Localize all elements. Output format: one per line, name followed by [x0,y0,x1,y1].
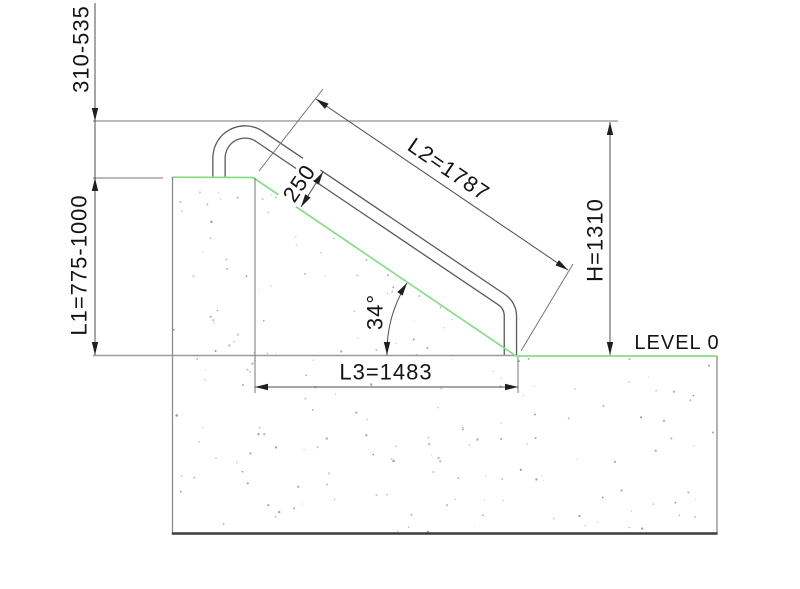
stipple-dot [469,444,470,445]
stipple-dot [387,274,389,276]
stipple-dot [267,212,269,214]
stipple-dot [484,499,485,500]
stipple-dot [673,391,675,393]
stipple-dot [434,296,435,297]
dimension-arrow [92,178,98,191]
stipple-dot [376,494,378,496]
stipple-dot [386,494,388,496]
stipple-dot [297,486,299,488]
stipple-dot [433,231,434,232]
stipple-dot [320,252,322,254]
stipple-dot [702,306,704,308]
stipple-dot [193,477,195,479]
stipple-dot [683,319,685,321]
stipple-dot [541,475,542,476]
stipple-dot [634,225,635,226]
stipple-dot [678,261,680,263]
technical-drawing: 310-535 L1=775-1000 L2=1787 250 H=1310 3… [0,0,800,589]
stipple-dot [539,350,540,351]
stipple-dot [206,203,208,205]
stipple-dot [607,350,609,352]
stipple-dot [202,427,203,428]
stipple-dot [597,319,599,321]
stipple-dot [365,434,367,436]
stipple-dot [334,499,335,500]
stipple-dot [346,222,348,224]
stipple-dot [249,371,251,373]
stipple-dot [228,344,230,346]
stipple-dot [563,325,564,326]
stipple-dot [432,213,434,215]
stipple-dot [574,388,576,390]
stipple-dot [501,478,503,480]
stipple-dot [462,428,464,430]
dimension-arrow [607,342,613,355]
stipple-dot [355,411,357,413]
stipple-dot [695,499,696,500]
stipple-dot [693,281,696,284]
stipple-dot [430,454,431,455]
stipple-dot [333,237,335,239]
dimension-arrow [92,108,98,121]
top-offset-dimension-label: 310-535 [69,5,94,93]
stipple-dot [263,433,265,435]
top-offset-dimension: 310-535 [69,5,94,93]
drawing-svg: 310-535 L1=775-1000 L2=1787 250 H=1310 3… [0,0,800,589]
stipple-dot [262,198,264,200]
stipple-dot [276,352,277,353]
stipple-dot [575,233,577,235]
stipple-dot [328,472,331,475]
stipple-dot [535,478,538,481]
stipple-dot [485,475,486,476]
stipple-dot [247,482,249,484]
stipple-dot [712,432,714,434]
stipple-dot [692,265,693,266]
l2-lower-extension-line [521,264,573,351]
stipple-dot [505,177,506,178]
stipple-dot [621,490,623,492]
stipple-dot [192,275,195,278]
stipple-dot [602,329,604,331]
stipple-dot [520,469,522,471]
stipple-dot [326,483,328,485]
stipple-dot [640,416,642,418]
dimension-arrow [607,122,613,135]
stipple-dot [258,177,260,179]
stipple-dot [675,230,677,232]
stipple-dot [237,461,238,462]
stipple-dot [454,499,456,501]
stipple-dot [312,409,314,411]
stipple-dot [646,242,648,244]
stipple-dot [301,504,302,505]
stipple-dot [267,504,269,506]
stipple-dot [443,327,445,329]
stipple-dot [458,477,460,479]
stipple-dot [692,395,694,397]
l3-dimension: L3=1483 [335,360,438,385]
stipple-dot [357,337,358,338]
stipple-dot [215,350,217,352]
stipple-dot [326,437,329,440]
stipple-dot [402,214,403,215]
stipple-dot [524,224,526,226]
stipple-dot [629,252,630,253]
stipple-dot [259,427,261,429]
stipple-dot [181,210,182,211]
stipple-dot [568,417,570,419]
stipple-dot [340,200,341,201]
stipple-dot [295,236,296,237]
stipple-dot [577,459,578,460]
stipple-dot [395,445,397,447]
stipple-dot [500,438,502,440]
stipple-dot [428,443,430,445]
stipple-dot [694,516,696,518]
stipple-dot [242,384,244,386]
stipple-dot [175,414,178,417]
stipple-dot [213,322,215,324]
stipple-dot [693,210,694,211]
stipple-dot [453,310,455,312]
stipple-dot [410,514,412,516]
stipple-dot [569,308,571,310]
stipple-dot [210,221,212,223]
stipple-dot [218,192,220,194]
stipple-dot [500,378,501,379]
stipple-dot [226,268,228,270]
stipple-dot [437,407,439,409]
stipple-dot [340,350,342,352]
stipple-dot [659,195,660,196]
stipple-dot [202,251,203,252]
stipple-dot [597,521,599,523]
l1-dimension: L1=775-1000 [67,194,92,335]
stipple-dot [196,358,198,360]
stipple-dot [529,207,531,209]
stipple-dot [451,318,453,320]
stipple-dot [498,281,500,283]
stipple-dot [502,500,503,501]
stipple-dot [537,212,539,214]
stipple-dot [357,245,359,247]
l2-dimension-label: L2=1787 [403,133,494,206]
stipple-dot [534,414,536,416]
dimension-arrow [92,342,98,355]
level0-label: LEVEL 0 [634,332,719,354]
stipple-dot [629,527,630,528]
stipple-dot [461,425,462,426]
stipple-dot [390,458,392,460]
stipple-dot [414,320,415,321]
stipple-dot [679,515,681,517]
stipple-dot [354,310,356,312]
stipple-dot [251,362,254,365]
stipple-dot [528,212,531,215]
stipple-dot [414,181,416,183]
stipple-dot [364,177,365,178]
stipple-dot [246,276,248,278]
stipple-dot [316,215,318,217]
stipple-dot [305,374,307,376]
stipple-dot [656,206,658,208]
stipple-dot [526,330,528,332]
stipple-dot [561,177,562,178]
stipple-dot [180,491,182,493]
stipple-dot [708,365,710,367]
stipple-dot [435,213,437,215]
angle-dimension: 34° [363,283,388,341]
stipple-dot [441,223,443,225]
stipple-dot [257,433,259,435]
stipple-dot [578,515,580,517]
stipple-dot [442,204,444,206]
stipple-dot [375,349,377,351]
angle-dimension-label: 34° [363,294,388,330]
stipple-dot [223,523,225,525]
h-dimension: H=1310 [583,198,608,282]
stipple-dot [585,525,586,526]
stipple-dot [687,491,689,493]
stipple-dot [535,437,537,439]
stipple-dot [199,191,201,193]
l1-dimension-label: L1=775-1000 [67,194,92,335]
l2-dimension: L2=1787 [403,133,494,206]
stipple-dot [565,221,568,224]
stipple-dot [440,388,442,390]
stipple-dot [263,320,265,322]
stipple-dot [602,496,604,498]
stipple-dot [540,297,542,299]
stipple-dot [439,460,441,462]
stipple-dot [440,307,442,309]
l3-dimension-label: L3=1483 [339,360,432,385]
stipple-dot [356,274,358,276]
stipple-dot [533,386,534,387]
stipple-dot [357,216,358,217]
stipple-dot [237,196,239,198]
stipple-dot [426,347,428,349]
stipple-dot [418,295,420,297]
stipple-dot [555,323,556,324]
stipple-dot [304,273,306,275]
stipple-dot [278,511,280,513]
stipple-dot [493,371,494,372]
stipple-dot [317,446,319,448]
stipple-dot [476,438,479,441]
stipple-dot [557,277,558,278]
stipple-dot [198,441,200,443]
stipple-dot [649,233,651,235]
stipple-dot [392,286,394,288]
stipple-dot [569,311,570,312]
stipple-dot [648,377,649,378]
stipple-dot [631,510,633,512]
stipple-dot [212,319,214,321]
stipple-dot [482,514,484,516]
stipple-dot [395,343,397,345]
stipple-dot [249,452,252,455]
stipple-dot [673,250,675,252]
stipple-dot [655,450,657,452]
stipple-dot [670,437,672,439]
stipple-dot [603,405,605,407]
stipple-dot [225,258,227,260]
stipple-dot [653,324,655,326]
stipple-dot [645,181,646,182]
stipple-dot [663,420,665,422]
stipple-dot [500,423,501,424]
stipple-dot [677,249,678,250]
stipple-dot [674,502,676,504]
stipple-dot [181,475,183,477]
stipple-dot [237,333,239,335]
stipple-dot [392,460,395,463]
h-dimension-label: H=1310 [583,198,608,282]
stipple-dot [627,254,629,256]
stipple-dot [271,194,272,195]
stipple-dot [246,368,249,371]
stipple-dot [691,275,693,277]
stipple-dot [365,241,367,243]
stipple-dot [210,238,212,240]
stipple-dot [689,399,691,401]
stipple-dot [695,298,697,300]
stipple-dot [408,526,410,528]
stipple-dot [437,457,439,459]
stipple-dot [708,195,710,197]
stipple-dot [653,503,655,505]
stipple-dot [641,527,643,529]
stipple-dot [267,353,268,354]
stipple-dot [446,504,448,506]
stipple-dot [427,436,429,438]
stipple-dot [433,286,434,287]
stipple-dot [335,394,336,395]
l2-dimension-line [316,99,568,270]
stipple-dot [204,379,206,381]
stipple-dot [518,312,519,313]
stipple-dot [552,305,553,306]
stipple-dot [712,320,713,321]
stipple-dot [271,286,272,287]
stipple-dot [397,531,399,533]
stipple-dot [236,462,237,463]
stipple-dot [432,471,434,473]
stipple-dot [365,259,367,261]
stipple-dot [466,215,467,216]
stipple-dot [473,218,475,220]
stipple-dot [324,275,325,276]
stipple-dot [312,359,313,360]
stipple-dot [275,446,277,448]
stipple-dot [655,390,657,392]
stipple-dot [396,242,398,244]
stipple-dot [242,471,244,473]
stipple-dot [700,194,701,195]
stipple-dot [462,427,464,429]
stipple-dot [478,298,480,300]
stipple-dot [628,381,630,383]
stipple-dot [215,457,217,459]
stipple-dot [179,201,181,203]
stipple-dot [628,291,630,293]
stipple-dot [558,326,560,328]
stipple-dot [304,449,305,450]
stipple-dot [304,398,306,400]
stipple-dot [209,316,211,318]
stipple-dot [220,198,222,200]
stipple-dot [233,340,235,342]
stipple-dot [293,507,295,509]
stipple-dot [413,339,415,341]
stipple-dot [431,221,433,223]
stipple-dot [693,445,694,446]
stipple-dot [275,516,277,518]
stipple-dot [217,310,219,312]
stipple-dot [258,289,259,290]
stipple-dot [296,245,297,246]
stipple-dot [436,198,438,200]
stipple-dot [364,191,365,192]
stipple-dot [528,358,530,360]
stipple-dot [694,187,696,189]
stipple-dot [614,461,616,463]
stipple-dot [589,307,591,309]
stipple-dot [451,359,452,360]
stipple-dot [474,526,475,527]
stipple-dot [205,370,206,371]
dimension-arrow [555,260,569,273]
stipple-dot [543,480,544,481]
stipple-dot [527,443,528,444]
stipple-dot [628,358,630,360]
stipple-dot [552,185,553,186]
stipple-dot [625,264,626,265]
stipple-dot [411,202,413,204]
stipple-dot [553,518,555,520]
stipple-dot [367,419,368,420]
stipple-dot [372,454,374,456]
stipple-dot [623,288,625,290]
stipple-dot [391,291,393,293]
stipple-dot [530,322,532,324]
stipple-dot [523,395,524,396]
